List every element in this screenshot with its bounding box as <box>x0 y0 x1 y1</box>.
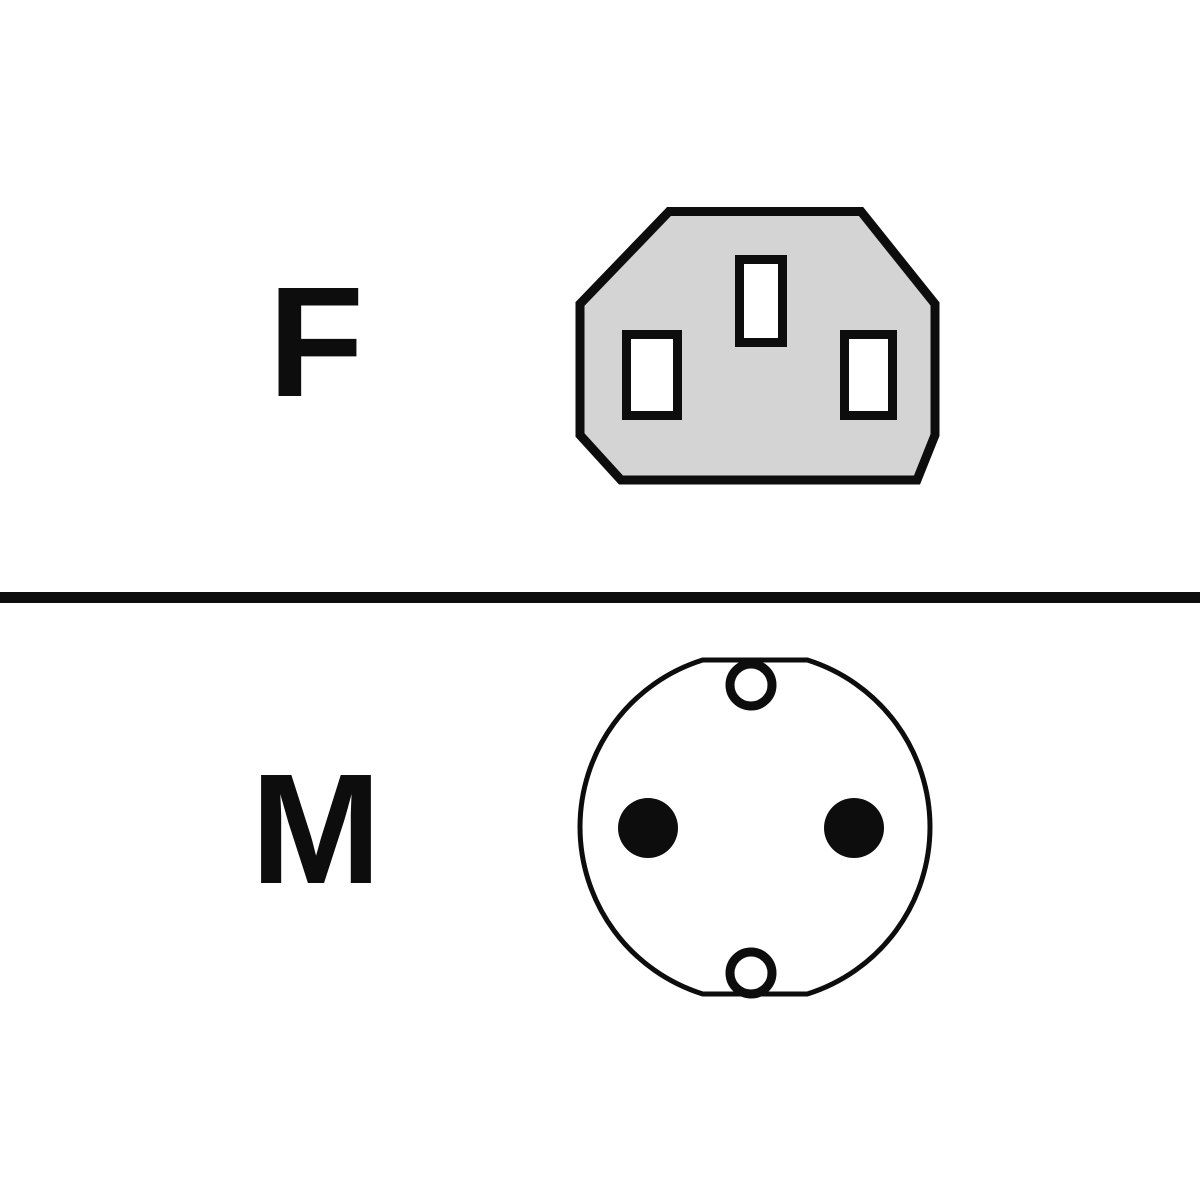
connector-diagram: F M <box>0 0 1200 1200</box>
female-slot-left <box>627 335 678 416</box>
female-label: F <box>216 263 416 423</box>
female-connector-icon <box>573 201 945 487</box>
male-pin-right <box>824 798 884 858</box>
male-connector-icon <box>570 640 942 1012</box>
female-slot-center <box>740 260 783 343</box>
female-slot-right <box>845 335 893 416</box>
male-pin-left <box>618 798 678 858</box>
divider-line <box>0 592 1200 603</box>
male-ground-ring-bottom <box>730 952 772 994</box>
male-label: M <box>216 750 416 910</box>
male-ground-ring-top <box>730 664 772 706</box>
